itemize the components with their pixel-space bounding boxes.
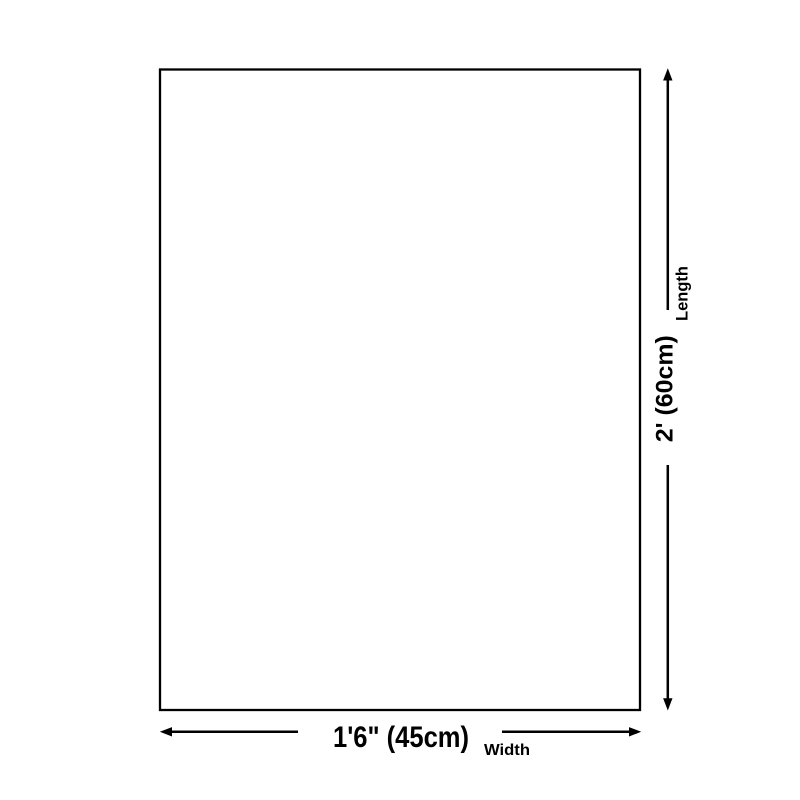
svg-text:Width: Width [484,742,530,759]
svg-text:Length: Length [674,266,692,321]
svg-text:2' (60cm): 2' (60cm) [652,335,679,442]
svg-text:1'6" (45cm): 1'6" (45cm) [333,721,469,754]
